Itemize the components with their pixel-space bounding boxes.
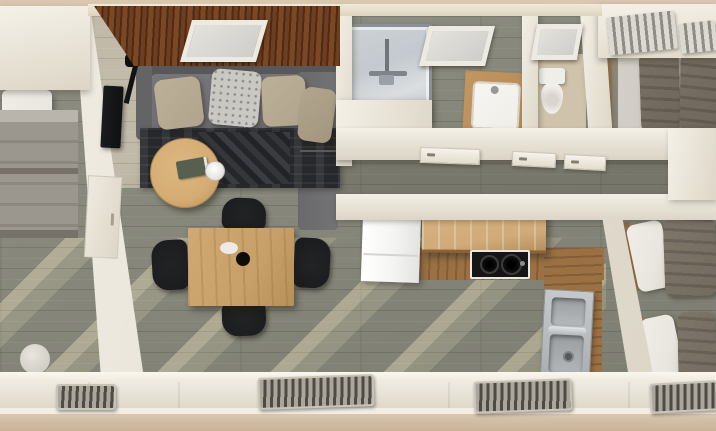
door-3-handle	[571, 160, 579, 163]
fridge-door-seam	[364, 253, 418, 257]
radiator-1-fins	[58, 386, 114, 408]
skylight-wc	[531, 24, 583, 60]
round-coffee-table	[150, 138, 220, 208]
radiator-4	[649, 380, 716, 414]
wall-wc-left	[522, 6, 538, 132]
cooktop-burner-2	[501, 254, 522, 275]
hallway-door-2	[512, 151, 557, 168]
radiator-1	[56, 384, 116, 410]
dining-chair-left	[151, 239, 190, 291]
wall-top-left-room	[0, 6, 90, 90]
door-2-handle	[519, 157, 527, 160]
radiator-3-fins	[476, 380, 571, 411]
left-bed-footboard	[0, 230, 78, 238]
hallway-floor-shadow	[336, 160, 676, 196]
hallway-door-1	[420, 147, 481, 165]
wall-tv	[100, 86, 123, 149]
dining-chair-bottom	[221, 301, 266, 337]
left-room-pouf	[20, 344, 50, 374]
cooktop-knob	[520, 261, 525, 266]
exterior-trim	[0, 414, 716, 431]
radiator-2	[257, 374, 374, 410]
radiator-3	[473, 378, 572, 413]
dining-chair-right	[293, 237, 332, 289]
door-1-handle	[427, 153, 435, 156]
wall-cabinet	[84, 175, 122, 259]
radiator-2-fins	[260, 376, 373, 408]
bed1-duvet-right	[679, 52, 716, 133]
bed1-duvet-left	[639, 51, 682, 132]
radiator-4-fins	[651, 382, 716, 411]
skylight-living-room	[180, 20, 268, 62]
cooktop-burner-1	[480, 255, 499, 274]
hallway-door-3	[564, 154, 607, 171]
wall-between-bedrooms	[668, 128, 716, 200]
window-blinds-2	[679, 20, 716, 54]
cabinet-handle	[111, 213, 115, 225]
fridge	[361, 209, 421, 283]
bathroom-vanity	[462, 70, 527, 135]
cooktop	[470, 250, 530, 279]
sink-basin-upper	[551, 297, 586, 327]
dining-chair-top	[221, 197, 266, 231]
cup	[205, 161, 225, 181]
bed2-duvet	[663, 217, 716, 297]
wall-hallway-south	[336, 194, 716, 220]
vase-opening	[236, 252, 250, 266]
skylight-bathroom	[419, 26, 495, 66]
dining-table	[188, 228, 294, 306]
throw-pillow-tan-1	[153, 75, 205, 130]
left-bed-blanket	[0, 122, 78, 234]
apartment-floorplan-render	[0, 0, 716, 431]
throw-pillow-patterned	[208, 68, 263, 128]
window-blinds-1	[606, 11, 678, 56]
shower-head	[379, 75, 394, 85]
kitchen-sink	[540, 289, 595, 383]
sofa-chaise-seam	[300, 150, 336, 152]
